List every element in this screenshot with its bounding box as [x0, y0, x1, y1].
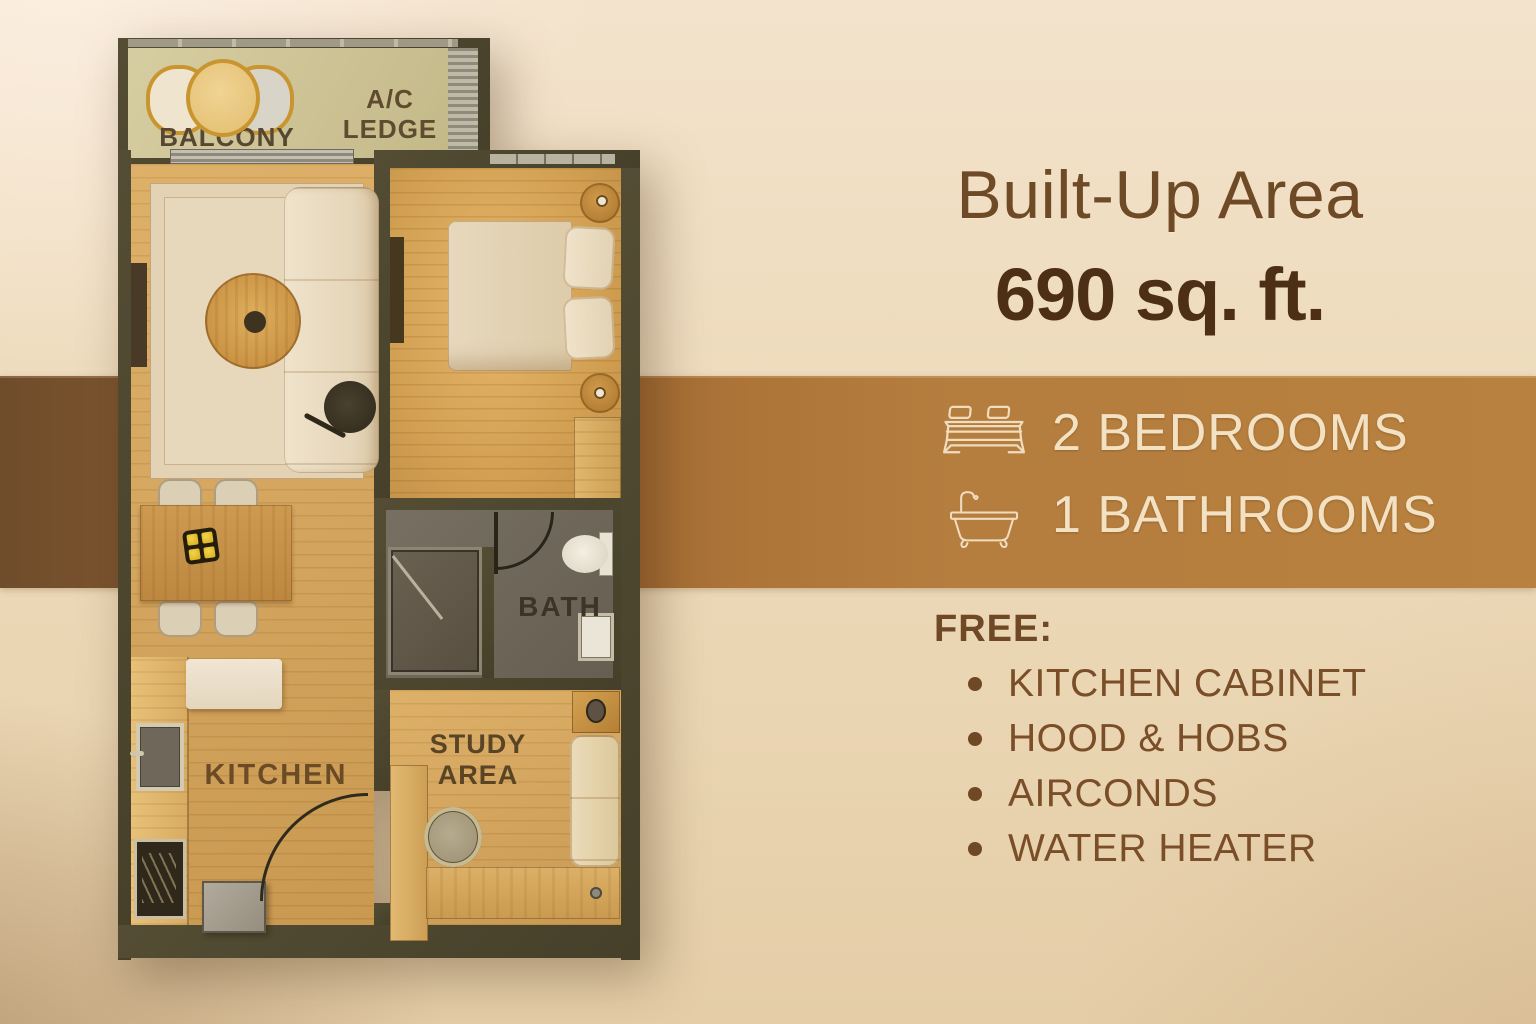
floorplan: BALCONY A/C LEDGE BATH KITCHEN STUDY ARE…	[112, 35, 646, 960]
label-bath: BATH	[508, 591, 612, 623]
bullet-dot	[968, 842, 982, 856]
dining-tray	[182, 527, 220, 565]
kitchen-appliance	[202, 881, 266, 933]
bedroom-window	[490, 154, 615, 164]
feature-rows: 2 BEDROOMS 1 BATHROOMS	[938, 392, 1458, 556]
bedroom-tv-console	[390, 237, 404, 343]
kitchen-door	[390, 765, 428, 941]
balcony-table	[186, 59, 260, 137]
study-chair	[424, 807, 482, 867]
free-item-label: KITCHEN CABINET	[1008, 662, 1367, 706]
kitchen-faucet	[130, 751, 144, 756]
free-item-label: HOOD & HOBS	[1008, 717, 1289, 761]
wall-left	[118, 150, 131, 960]
wall-kitchen-study-bottom	[374, 903, 390, 925]
wall-kitchen-study-top	[374, 690, 390, 791]
hob-burners	[142, 853, 176, 903]
free-list: KITCHEN CABINET HOOD & HOBS AIRCONDS WAT…	[968, 656, 1367, 876]
free-item-kitchen-cabinet: KITCHEN CABINET	[968, 656, 1367, 711]
floor-lamp	[324, 381, 376, 433]
built-up-area-title: Built-Up Area	[890, 156, 1430, 234]
label-study-area: STUDY AREA	[406, 729, 550, 791]
nightstand-lamp	[594, 387, 606, 399]
bed	[448, 221, 572, 371]
bullet-dot	[968, 677, 982, 691]
nightstand-lamp	[596, 195, 608, 207]
dining-chair	[158, 601, 202, 637]
wall-right	[621, 150, 640, 960]
free-item-water-heater: WATER HEATER	[968, 821, 1367, 876]
toilet	[562, 535, 608, 573]
pillow	[562, 226, 615, 291]
free-item-label: WATER HEATER	[1008, 827, 1317, 871]
bullet-dot	[968, 787, 982, 801]
flyer: Built-Up Area 690 sq. ft. 2 BEDROOMS	[0, 0, 1536, 1024]
bedrooms-row: 2 BEDROOMS	[938, 392, 1458, 474]
area-value: 690 sq. ft.	[890, 252, 1430, 337]
bullet-dot	[968, 732, 982, 746]
kitchen-counter-top	[186, 659, 282, 709]
wall-shower	[482, 547, 494, 678]
free-item-label: AIRCONDS	[1008, 772, 1218, 816]
study-sofa	[570, 735, 620, 867]
free-item-hood-hobs: HOOD & HOBS	[968, 711, 1367, 766]
wardrobe	[574, 417, 621, 505]
wall-bottom	[118, 925, 640, 958]
kitchen-sink	[136, 723, 184, 791]
pillow	[562, 296, 615, 361]
coffee-table-hub	[244, 311, 266, 333]
free-heading: FREE:	[934, 608, 1053, 651]
balcony-window	[128, 39, 458, 47]
bed-icon	[938, 398, 1030, 468]
bathrooms-label: 1 BATHROOMS	[1052, 485, 1438, 545]
free-item-airconds: AIRCONDS	[968, 766, 1367, 821]
label-ac-ledge: A/C LEDGE	[342, 85, 438, 145]
study-shelf-item	[586, 699, 606, 723]
desk-knob	[590, 887, 602, 899]
living-tv-console	[131, 263, 147, 367]
bathrooms-row: 1 BATHROOMS	[938, 474, 1458, 556]
bedrooms-label: 2 BEDROOMS	[1052, 403, 1409, 463]
ac-ledge-hatch-wall	[448, 48, 478, 158]
bathtub-icon	[938, 480, 1030, 550]
dining-chair	[214, 601, 258, 637]
label-kitchen: KITCHEN	[198, 759, 354, 792]
